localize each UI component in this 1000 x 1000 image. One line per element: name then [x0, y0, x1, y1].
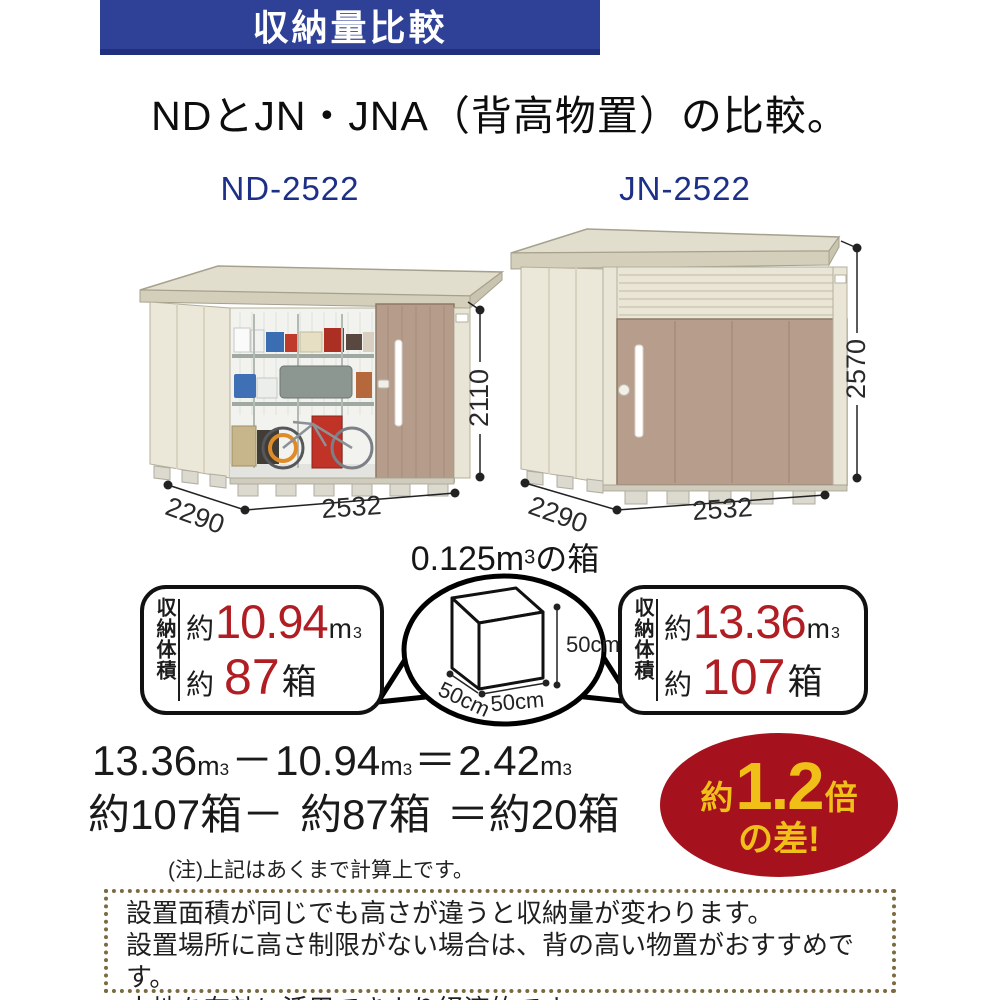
stat-divider	[178, 599, 180, 701]
reference-cube-balloon: 50cm 50cm 50cm	[365, 555, 645, 740]
stat-vertical-label: 収納体積	[632, 597, 652, 703]
footer-line-3: 土地を有効に活用できより経済的です。	[126, 994, 892, 1000]
difference-badge: 約1.2倍 の差!	[660, 733, 898, 877]
footer-line-1: 設置面積が同じでも高さが違うと収納量が変わります。	[126, 898, 892, 930]
shed-illustration-nd2522: 2290 2532 2110	[130, 240, 510, 535]
stat-box-jn: 収納体積 約13.36m3 約107箱	[618, 585, 868, 715]
badge-line2: の差!	[738, 822, 820, 857]
volume-value: 10.94	[215, 598, 328, 645]
calc-volume-equation: 13.36m3－10.94m3＝2.42m3	[92, 740, 572, 782]
door-handle	[635, 345, 643, 437]
shed-front	[603, 267, 847, 485]
brand-tag	[456, 314, 468, 322]
stat-volume-row: 約10.94m3	[186, 598, 376, 645]
depth-dimension-label: 2290	[162, 491, 229, 535]
shed-roof	[511, 229, 839, 269]
footer-line-2: 設置場所に高さ制限がない場合は、背の高い物置がおすすめです。	[126, 930, 892, 994]
door-lock	[378, 380, 389, 388]
badge-line1: 約1.2倍	[700, 753, 857, 820]
stat-boxes-row: 約107箱	[664, 652, 860, 702]
shed-left-wall	[521, 267, 603, 483]
door-lock	[619, 385, 630, 396]
stat-boxes-row: 約87箱	[186, 652, 376, 702]
stat-volume-row: 約13.36m3	[664, 598, 860, 645]
infographic-canvas: 収納量比較 NDとJN・JNA（背高物置）の比較。 ND-2522 JN-252…	[0, 0, 1000, 1000]
width-dimension-label: 2532	[691, 492, 753, 526]
stat-vertical-label: 収納体積	[154, 597, 174, 703]
model-label-jn: JN-2522	[565, 170, 805, 208]
calc-note: (注)上記はあくまで計算上です。	[168, 854, 474, 884]
door-handle	[395, 340, 402, 426]
stat-divider	[656, 599, 658, 701]
shed-roof	[140, 266, 502, 308]
calc-boxes-equation: 約107箱－約87箱＝約20箱	[88, 794, 620, 836]
cube-height-label: 50cm	[566, 632, 620, 657]
banner: 収納量比較	[100, 0, 600, 55]
height-dimension-label: 2110	[464, 369, 494, 427]
boxes-value: 107	[702, 652, 785, 702]
shed-doors	[617, 319, 847, 485]
cube-illustration	[452, 588, 543, 689]
banner-title: 収納量比較	[252, 0, 447, 51]
depth-dimension-label: 2290	[525, 490, 592, 535]
width-dimension-label: 2532	[320, 490, 382, 524]
shed-left-wall	[150, 302, 230, 478]
cube-width-label: 50cm	[489, 687, 545, 717]
model-label-nd: ND-2522	[170, 170, 410, 208]
brand-tag	[835, 275, 846, 283]
page-title: NDとJN・JNA（背高物置）の比較。	[0, 82, 1000, 142]
height-dimension-label: 2570	[841, 339, 871, 399]
volume-value: 13.36	[693, 598, 806, 645]
footer-note-box: 設置面積が同じでも高さが違うと収納量が変わります。 設置場所に高さ制限がない場合…	[104, 889, 896, 993]
badge-value: 1.2	[735, 753, 822, 820]
shed-door	[376, 304, 454, 482]
shed-illustration-jn2522: 2290 2532 2570	[505, 215, 895, 535]
stat-box-nd: 収納体積 約10.94m3 約87箱	[140, 585, 384, 715]
shed-interior	[230, 308, 376, 478]
boxes-value: 87	[224, 652, 280, 702]
